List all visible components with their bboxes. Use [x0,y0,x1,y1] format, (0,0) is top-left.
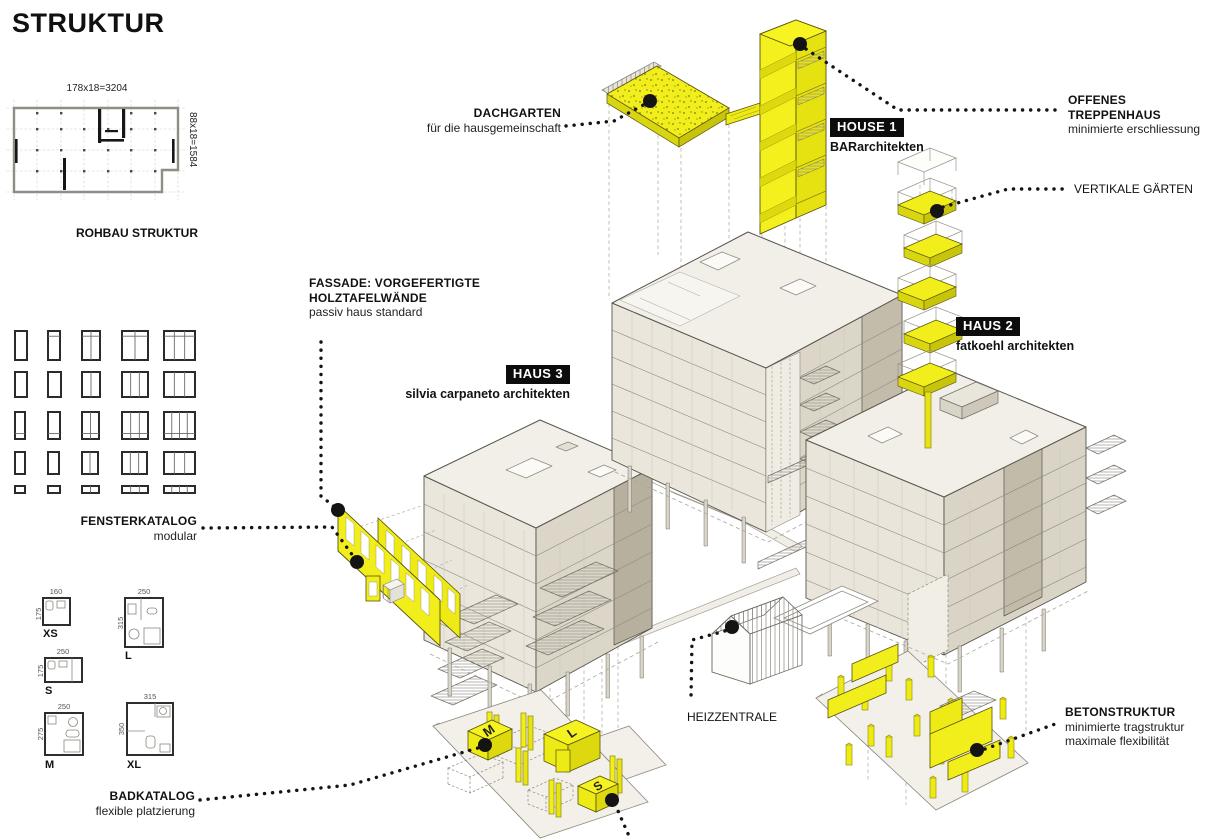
badkatalog-title: BADKATALOG [96,789,195,804]
bath-size-label: L [125,650,132,662]
haus2-architect: fatkoehl architekten [956,339,1074,354]
window-type [48,372,61,397]
window-type [122,486,148,493]
window-type [15,486,25,493]
annotation-dot-dachgarten [643,94,657,108]
window-type [15,372,27,397]
vertikale-gaerten-leader-line [943,189,1066,207]
house1-label: HOUSE 1 BARarchitekten [830,118,924,155]
dim: 275 [36,728,45,741]
offenes-sub: minimierte erschliessung [1068,122,1200,137]
roof-bridge [726,103,760,125]
fassade-label: FASSADE: VORGEFERTIGTE HOLZTAFELWÄNDE pa… [309,276,480,320]
betonstruktur-label: BETONSTRUKTUR minimierte tragstruktur ma… [1065,705,1184,749]
dim: 175 [36,665,45,678]
axon-diagram: 178x18=3204 88x18=1584 160 175 XS 250 17… [0,0,1214,839]
page-title: STRUKTUR [12,8,165,39]
bath-size-label: XS [43,628,58,640]
dim: 250 [138,587,151,596]
rohbau-plan: 178x18=3204 88x18=1584 [7,83,198,200]
window-type [164,452,195,474]
haus3-label: HAUS 3 silvia carpaneto architekten [405,365,570,402]
beton-title: BETONSTRUKTUR [1065,705,1184,720]
haus2-label: HAUS 2 fatkoehl architekten [956,317,1074,354]
window-catalog-grid [15,331,195,493]
rohbau-label: ROHBAU STRUKTUR [76,226,198,241]
fassade-line2: HOLZTAFELWÄNDE [309,291,480,306]
dachgarten-label: DACHGARTEN für die hausgemeinschaft [427,106,561,135]
offenes-line1: OFFENES [1068,93,1200,108]
fensterkatalog-sub: modular [81,529,197,544]
struktur-diagram-page: 178x18=3204 88x18=1584 160 175 XS 250 17… [0,0,1214,839]
window-type [122,412,148,439]
vertikale-gaerten-label: VERTIKALE GÄRTEN [1074,182,1193,197]
annotation-dot-vertikale [930,204,944,218]
annotation-dot-treppenhaus [793,37,807,51]
dim: 175 [34,608,43,621]
fassade-sub: passiv haus standard [309,305,480,320]
dachgarten-sub: für die hausgemeinschaft [427,121,561,136]
haus2-tag: HAUS 2 [956,317,1020,336]
stair-tower [760,20,826,234]
bath-plan-m: 250 275 M [36,702,83,771]
dachgarten-title: DACHGARTEN [427,106,561,121]
window-type [48,331,60,360]
dim: 350 [117,723,126,736]
garden-post [925,392,931,448]
window-type [48,486,60,493]
bath-plan-l: 250 315 L [116,587,163,662]
badkatalog-sub: flexible platzierung [96,804,195,819]
window-type [164,372,195,397]
beton-sub1: minimierte tragstruktur [1065,720,1184,735]
bath-catalog: 160 175 XS 250 175 S 250 275 M [34,587,173,771]
beton-sub2: maximale flexibilität [1065,734,1184,749]
annotation-dot-fensterkatalog [350,555,364,569]
fassade-leader-line [321,342,337,509]
annotation-dot-betonstruktur [970,743,984,757]
annotation-dot-heizzentrale [725,620,739,634]
building-haus3 [424,420,658,732]
window-type [122,372,148,397]
fassade-line1: FASSADE: VORGEFERTIGTE [309,276,480,291]
window-type [48,452,59,474]
annotation-dot-fassade [331,503,345,517]
heizzentrale-label: HEIZZENTRALE [687,710,777,725]
offenes-treppenhaus-label: OFFENES TREPPENHAUS minimierte erschlies… [1068,93,1200,137]
dim: 250 [58,702,71,711]
offenes-line2: TREPPENHAUS [1068,108,1200,123]
concrete-structure-plate [816,644,1028,810]
plan-dim-horizontal: 178x18=3204 [67,83,128,94]
window-type [15,452,25,474]
bath-size-label: S [45,685,52,697]
haus3-tag: HAUS 3 [506,365,570,384]
fensterkatalog-title: FENSTERKATALOG [81,514,197,529]
offenes-treppenhaus-leader-line [806,49,1058,110]
house1-architect: BARarchitekten [830,140,924,155]
badkatalog-leader-line [200,748,478,800]
haus3-architect: silvia carpaneto architekten [405,387,570,402]
window-type [164,331,195,360]
window-type [122,452,147,474]
fensterkatalog-leader-line [203,527,356,560]
window-type [15,412,25,439]
annotation-dot-bath-s [605,793,619,807]
plan-dim-vertical: 88x18=1584 [187,112,198,168]
window-type [48,412,60,439]
house1-tag: HOUSE 1 [830,118,904,137]
dim: 160 [50,587,63,596]
bath-size-label: M [45,759,54,771]
bath-size-label: XL [127,759,141,771]
annotation-dot-bath-m [478,738,492,752]
dim: 250 [57,647,70,656]
plan-core-walls [15,109,175,190]
bath-plan-xs: 160 175 XS [34,587,70,640]
fensterkatalog-label: FENSTERKATALOG modular [81,514,197,543]
dim: 315 [116,617,125,630]
dim: 315 [144,692,157,701]
window-type [15,331,27,360]
roof-garden [602,62,760,147]
bath-plan-xl: 315 350 XL [117,692,173,771]
badkatalog-label: BADKATALOG flexible platzierung [96,789,195,818]
bath-plan-s: 250 175 S [36,647,82,697]
bath-module-plate: M L S [433,690,666,838]
